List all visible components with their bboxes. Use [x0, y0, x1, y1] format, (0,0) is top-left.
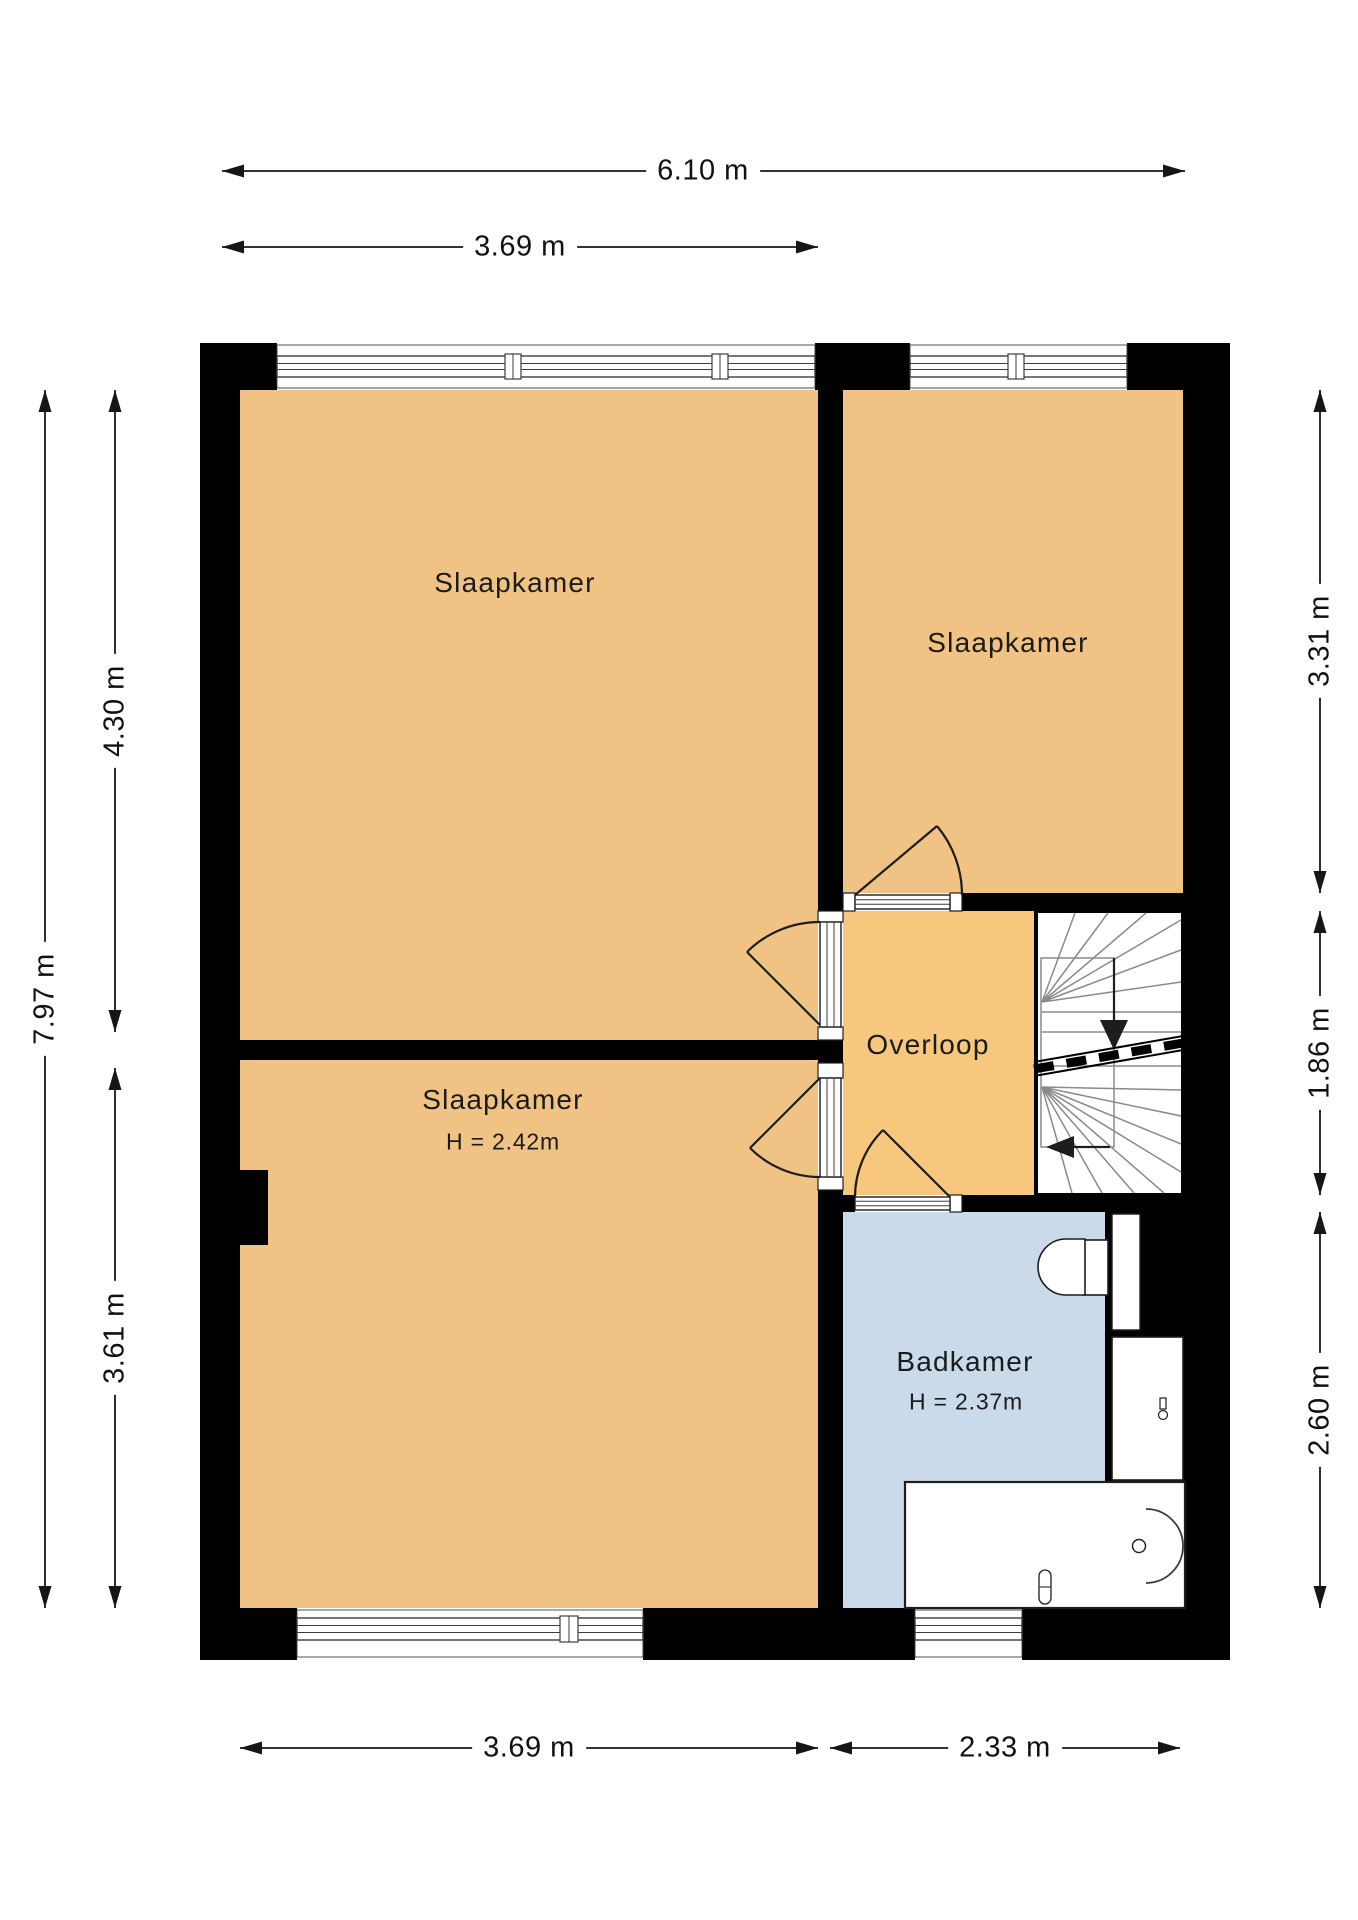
- wall-center-vertical-bottom: [818, 1190, 843, 1608]
- wall-right: [1183, 343, 1230, 1660]
- wall-bathroom-top: [962, 1195, 1183, 1212]
- tap-icon: [1160, 1398, 1166, 1409]
- dim-label-top-2: 3.69 m: [463, 231, 577, 264]
- wall-left: [200, 343, 240, 1660]
- wall-bedroomtr-bottom: [962, 893, 1183, 911]
- room-label-bathroom: Badkamer: [896, 1346, 1033, 1378]
- dim-label-left-2: 4.30 m: [99, 654, 132, 768]
- bathtub: [905, 1482, 1185, 1608]
- floorplan: Slaapkamer Slaapkamer Slaapkamer H = 2.4…: [0, 0, 1358, 1920]
- dim-label-right-2: 1.86 m: [1304, 996, 1337, 1110]
- wall-bottom-pier-left: [200, 1608, 297, 1660]
- room-label-bedroom-bottom-left: Slaapkamer: [422, 1084, 583, 1116]
- washbasin: [1112, 1337, 1183, 1480]
- wall-bottom-pier-mid: [643, 1608, 915, 1660]
- dim-label-top-1: 6.10 m: [646, 155, 760, 188]
- wall-center-vertical-top: [818, 390, 843, 911]
- bedroom-top-left-floor: [240, 390, 818, 1040]
- stairs: [1034, 911, 1183, 1195]
- window-bathroom: [915, 1610, 1022, 1657]
- toilet: [1038, 1239, 1108, 1295]
- wall-top-pier-left: [200, 343, 277, 390]
- tap-icon: [1159, 1411, 1168, 1420]
- wall-bottom-pier-right: [1022, 1608, 1230, 1660]
- window-bottom-left: [297, 1610, 643, 1657]
- floorplan-drawing: [0, 0, 1358, 1920]
- faucet-icon: [1133, 1540, 1146, 1553]
- dim-label-right-1: 3.31 m: [1304, 584, 1337, 698]
- room-note-bathroom: H = 2.37m: [909, 1389, 1023, 1416]
- dim-label-right-3: 2.60 m: [1304, 1353, 1337, 1467]
- room-label-bedroom-top-left: Slaapkamer: [434, 567, 595, 599]
- wall-top-pier-right: [1127, 343, 1230, 390]
- wall-bedroom-divider: [240, 1040, 818, 1060]
- room-label-landing: Overloop: [866, 1029, 989, 1061]
- duct: [1112, 1214, 1140, 1330]
- window-top-right: [910, 345, 1127, 388]
- dim-label-bottom-2: 2.33 m: [948, 1732, 1062, 1765]
- window-top-left: [277, 345, 815, 388]
- wall-center-junction: [818, 1040, 843, 1063]
- dim-label-left-1: 7.97 m: [29, 942, 62, 1056]
- dim-label-left-3: 3.61 m: [99, 1281, 132, 1395]
- room-note-bedroom-bottom-left: H = 2.42m: [446, 1129, 560, 1156]
- wall-bathroom-door-stub: [843, 1195, 855, 1212]
- room-label-bedroom-top-right: Slaapkamer: [927, 627, 1088, 659]
- wall-top-pier-mid: [815, 343, 910, 390]
- wall-left-notch: [240, 1170, 268, 1245]
- dim-label-bottom-1: 3.69 m: [472, 1732, 586, 1765]
